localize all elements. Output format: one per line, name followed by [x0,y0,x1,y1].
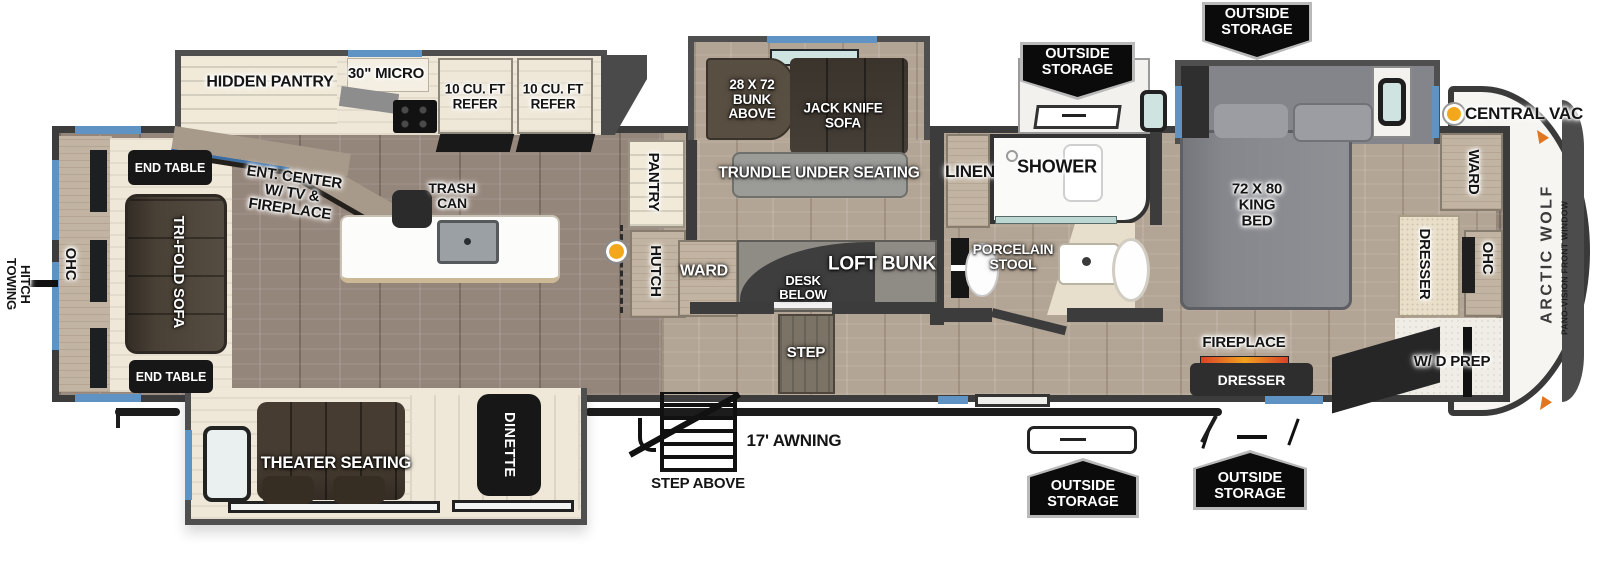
rear-ohc-window [90,150,107,212]
bunk-slide-window-strip [767,36,877,43]
end-table-top-label: END TABLE [135,161,206,175]
kitchen-slide-window [348,50,422,57]
rear-ohc-window [90,328,107,388]
door-mark [1287,418,1299,445]
outside-storage-badge-bg: OUTSIDE STORAGE [1030,461,1136,515]
bottom-slide-window-strip-left [228,501,440,513]
outside-storage-badge: OUTSIDE STORAGE [1020,42,1135,100]
refer-left-label: 10 CU. FT REFER [445,82,505,111]
bottom-wall-window-right [1265,396,1323,404]
bedroom-slide-window-left [1175,86,1182,138]
theater-seating-label: THEATER SEATING [261,455,411,473]
marker-light-bottom [1540,396,1552,410]
notch-window [1140,90,1167,132]
step-above-label: STEP ABOVE [651,476,745,492]
tri-fold-sofa-label: TRI-FOLD SOFA [170,216,186,328]
rear-wall-window [52,262,59,350]
bottom-wall-window-left [938,396,968,404]
theater-footrest-left [262,476,314,504]
dinette-label: DINETTE [501,412,517,478]
dinette-table: DINETTE [477,394,541,496]
bedroom-dresser-rear-label: DRESSER [1218,372,1286,388]
king-bed-label: 72 X 80 KING BED [1232,182,1282,231]
trash-can-label: TRASH CAN [428,181,475,211]
towing-hitch-label: TOWING HITCH [4,258,32,310]
hutch-label: HUTCH [647,245,663,297]
trundle-label: TRUNDLE UNDER SEATING [718,166,919,183]
cooktop [393,100,437,133]
rear-bottom-window [75,394,141,402]
vanity-faucet [1082,257,1091,266]
front-ward-label: WARD [1465,149,1481,194]
hidden-pantry-cabinet [181,58,337,124]
fireplace-label: FIREPLACE [1202,335,1285,351]
theater-footrest-right [333,476,385,504]
bunkroom-bottom-wall-left [690,302,774,314]
counter-right [516,134,595,152]
outside-storage-badge-label: OUTSIDE STORAGE [1042,47,1113,78]
loft-bunk-label: LOFT BUNK [828,255,936,276]
sink-drain [464,238,471,245]
awning-rail-left [115,408,180,416]
micro-label: 30" MICRO [348,66,424,82]
bedroom-slide-window-right [1432,86,1439,138]
desk-below-label: DESK BELOW [779,274,826,302]
outside-storage-badge-bg: OUTSIDE STORAGE [1205,5,1309,57]
central-vac-inlet-dot [606,241,627,262]
bedroom-dresser-rear: DRESSER [1190,363,1313,396]
trash-can [392,190,432,228]
rear-ohc-window [90,240,107,302]
rear-wall-window [52,160,59,240]
storage-lid-handle [1062,114,1086,117]
end-table-top: END TABLE [128,150,212,185]
kitchen-slide-end-wall [601,55,647,135]
bunkroom-ward-label: WARD [680,262,728,279]
pillow-left [1214,104,1288,138]
shower-label: SHOWER [1017,157,1097,176]
pano-vision-label: PANO-VISION FRONT WINDOW [1560,201,1569,335]
brand-label: ARCTIC WOLF [1538,184,1555,323]
wd-prep-label: W/ D PREP [1414,354,1491,370]
entry-door-dashes [620,225,625,313]
floorplan-canvas: END TABLE END TABLE [0,0,1600,578]
storage-compartment-handle [1060,438,1086,441]
outside-storage-badge-bg: OUTSIDE STORAGE [1023,45,1132,97]
bath-oval-fixture [1112,238,1150,302]
bath-right-wall [1150,133,1162,225]
outside-storage-badge-label: OUTSIDE STORAGE [1214,471,1285,502]
bottom-slide-window-box [203,426,251,502]
outside-storage-badge: OUTSIDE STORAGE [1193,450,1307,510]
counter-left [436,134,514,152]
bunkroom-bottom-wall-right [832,302,938,314]
storage-lid [1033,105,1121,129]
outside-storage-badge-label: OUTSIDE STORAGE [1047,479,1118,510]
linen-label: LINEN [945,163,995,181]
bottom-slide-window-strip-right [452,500,574,512]
awning-label: 17' AWNING [747,432,842,450]
rear-ohc-label: OHC [62,248,78,281]
end-table-bottom: END TABLE [129,360,213,393]
hidden-pantry-label: HIDDEN PANTRY [206,73,333,90]
bottom-wall-door [975,394,1050,407]
outside-storage-badge-label: OUTSIDE STORAGE [1221,7,1292,38]
pillow-right [1293,103,1373,142]
central-vac-dot [1444,104,1464,124]
central-vac-label: CENTRAL VAC [1465,105,1583,123]
end-table-bottom-label: END TABLE [136,370,207,384]
refer-right-label: 10 CU. FT REFER [523,82,583,111]
handle-mark [1237,435,1267,439]
bath-bottom-wall-left [930,308,992,322]
outside-storage-badge: OUTSIDE STORAGE [1027,458,1139,518]
outside-storage-badge: OUTSIDE STORAGE [1202,2,1312,60]
pantry-label: PANTRY [645,153,661,212]
porcelain-stool-label: PORCELAIN STOOL [973,242,1054,272]
outside-storage-badge-bg: OUTSIDE STORAGE [1196,453,1304,507]
jack-knife-sofa-label: JACK KNIFE SOFA [803,101,882,130]
bedroom-slide-corner [1181,66,1209,138]
shower-glass [995,216,1117,224]
bath-bottom-wall-right [1067,308,1163,322]
front-dresser-label: DRESSER [1416,228,1432,299]
step-label: STEP [787,345,825,361]
awning-arm-left [116,408,120,428]
bedroom-window [1378,78,1406,126]
front-closet-tv [1462,237,1475,293]
bottom-slide-window-left [185,430,192,500]
rear-top-window [75,126,141,134]
awning-arm-right [1200,415,1218,443]
front-ohc-label: OHC [1479,242,1495,275]
bunk-above-label: 28 X 72 BUNK ABOVE [728,78,775,122]
